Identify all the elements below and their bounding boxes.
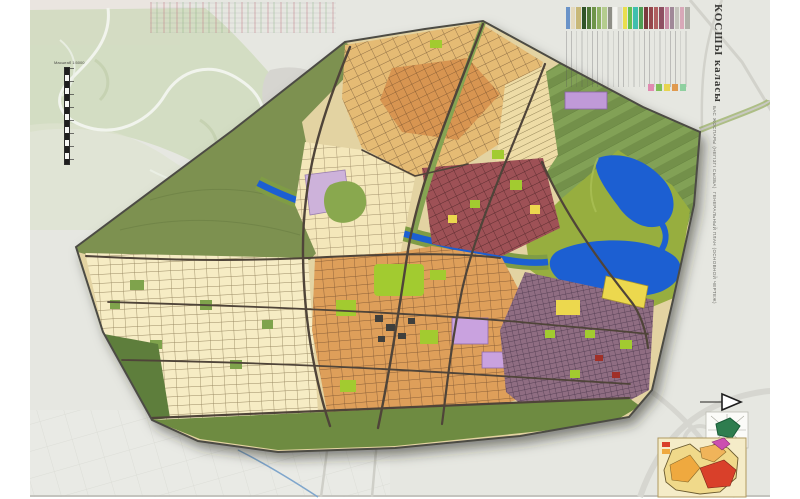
left-margin — [0, 0, 30, 499]
legend-swatch — [623, 7, 627, 29]
map-subtitle-kk: БАС ЖОСПАРЫ (НЕГІЗГІ СЫЗБА) — [712, 106, 724, 189]
legend-swatch — [618, 7, 622, 29]
legend-swatch — [633, 7, 637, 29]
faded-legend-text — [150, 2, 336, 33]
map-title: КОСШЫ каласы — [712, 4, 724, 103]
legend-swatch — [644, 7, 648, 29]
legend-swatch-row-secondary — [648, 84, 686, 91]
legend-swatch — [670, 7, 674, 29]
legend-swatch — [675, 7, 679, 29]
legend-swatch — [597, 7, 601, 29]
legend-swatch — [602, 7, 606, 29]
legend-swatch — [664, 84, 670, 91]
legend-swatch — [592, 7, 596, 29]
legend-swatch — [582, 7, 586, 29]
legend-label-text — [566, 31, 690, 87]
map-subtitle-ru: ГЕНЕРАЛЬНЫЙ ПЛАН (ОСНОВНОЙ ЧЕРТЕЖ) — [712, 192, 724, 304]
right-margin — [770, 0, 800, 499]
title-block: КОСШЫ каласы БАС ЖОСПАРЫ (НЕГІЗГІ СЫЗБА)… — [712, 4, 724, 154]
legend-swatch-row — [566, 7, 690, 29]
legend-swatch — [649, 7, 653, 29]
legend-swatch — [566, 7, 570, 29]
legend-swatch — [685, 7, 689, 29]
legend-swatch — [576, 7, 580, 29]
purple-facility-block — [565, 92, 607, 109]
legend-swatch — [628, 7, 632, 29]
legend-swatch — [672, 84, 678, 91]
scale-bar-ticks — [70, 68, 74, 164]
legend-swatch — [608, 7, 612, 29]
legend-swatch — [571, 7, 575, 29]
legend-swatch — [587, 7, 591, 29]
legend-swatch — [680, 7, 684, 29]
legend-swatch — [648, 84, 654, 91]
legend-swatch — [613, 7, 617, 29]
inset-development-stages — [658, 438, 746, 497]
legend-swatch — [654, 7, 658, 29]
legend-swatch — [639, 7, 643, 29]
map-sheet: Масштаб 1:5000 КОСШЫ каласы БАС ЖОСПАРЫ … — [0, 0, 800, 499]
legend-swatch — [659, 7, 663, 29]
legend-swatch — [680, 84, 686, 91]
scale-bar-label: Масштаб 1:5000 — [54, 60, 76, 65]
legend-swatch — [656, 84, 662, 91]
legend-swatch — [665, 7, 669, 29]
scale-bar: Масштаб 1:5000 — [56, 60, 78, 170]
